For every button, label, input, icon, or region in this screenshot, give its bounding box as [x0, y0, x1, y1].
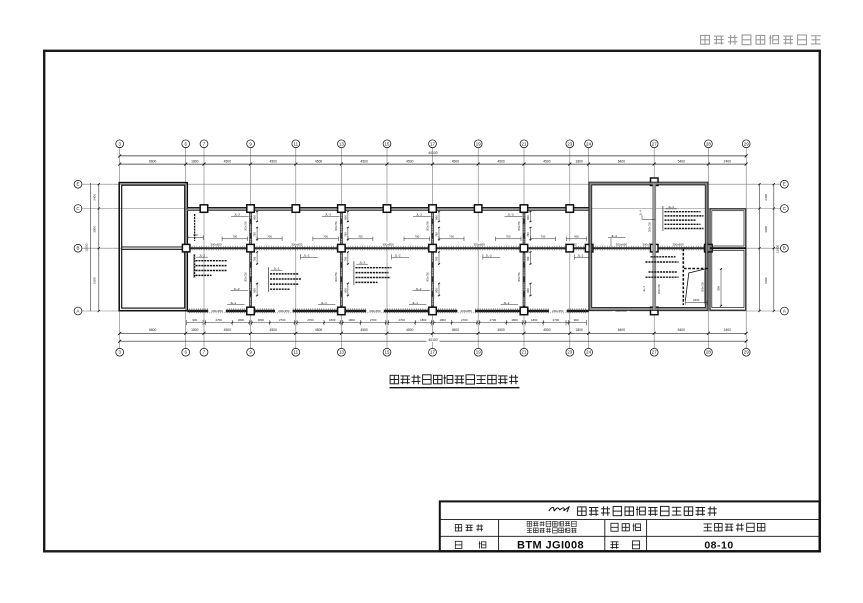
svg-text:6300: 6300 [93, 277, 97, 284]
svg-text:15: 15 [385, 350, 390, 355]
svg-text:6300: 6300 [764, 277, 768, 284]
svg-text:JL-1: JL-1 [274, 266, 280, 270]
svg-text:5400: 5400 [678, 159, 686, 163]
svg-text:1800: 1800 [348, 318, 355, 322]
svg-text:JL-2: JL-2 [486, 253, 492, 257]
svg-text:900: 900 [343, 215, 347, 220]
svg-text:300x650: 300x650 [291, 242, 303, 246]
svg-text:300x750: 300x750 [518, 272, 521, 282]
svg-text:2700: 2700 [215, 318, 222, 322]
svg-text:4500: 4500 [452, 328, 460, 332]
svg-text:JL-1: JL-1 [230, 301, 236, 305]
svg-text:1800: 1800 [420, 318, 427, 322]
svg-text:1800: 1800 [238, 318, 245, 322]
svg-text:JL-2: JL-2 [234, 213, 240, 217]
svg-text:2400: 2400 [764, 194, 768, 201]
svg-text:2700: 2700 [398, 318, 405, 322]
svg-text:4500: 4500 [361, 159, 369, 163]
svg-text:5400: 5400 [678, 328, 686, 332]
svg-text:4500: 4500 [406, 328, 414, 332]
svg-text:11: 11 [294, 350, 299, 355]
svg-text:4500: 4500 [543, 328, 551, 332]
svg-text:C: C [783, 206, 786, 211]
svg-text:1800: 1800 [511, 318, 518, 322]
svg-text:JL-4: JL-4 [611, 234, 617, 238]
svg-text:900: 900 [253, 288, 257, 293]
svg-text:19: 19 [476, 141, 481, 146]
svg-text:700: 700 [358, 234, 363, 238]
svg-text:E: E [783, 182, 786, 187]
svg-text:6400: 6400 [618, 328, 626, 332]
svg-text:200x350: 200x350 [369, 309, 381, 313]
svg-text:27: 27 [652, 141, 657, 146]
svg-text:17: 17 [430, 350, 435, 355]
svg-text:780: 780 [526, 256, 530, 261]
svg-text:200x350: 200x350 [278, 309, 290, 313]
svg-text:780: 780 [526, 232, 530, 237]
svg-text:900: 900 [193, 233, 198, 237]
svg-text:1800: 1800 [191, 328, 199, 332]
svg-text:780: 780 [434, 232, 438, 237]
svg-text:200x350: 200x350 [552, 309, 564, 313]
svg-text:08-10: 08-10 [704, 539, 733, 551]
svg-text:24: 24 [586, 141, 591, 146]
svg-text:900: 900 [343, 288, 347, 293]
svg-text:3900: 3900 [93, 226, 97, 233]
svg-text:JL-2: JL-2 [416, 213, 422, 217]
svg-text:700: 700 [449, 234, 454, 238]
svg-text:700: 700 [232, 234, 237, 238]
svg-text:4500: 4500 [497, 159, 505, 163]
svg-text:11: 11 [294, 141, 299, 146]
svg-text:6600: 6600 [149, 159, 157, 163]
svg-text:2700: 2700 [490, 318, 497, 322]
svg-text:JL-1: JL-1 [321, 301, 327, 305]
svg-text:4500: 4500 [543, 159, 551, 163]
svg-text:40100: 40100 [428, 338, 437, 342]
svg-text:13: 13 [339, 141, 344, 146]
svg-text:B: B [783, 246, 786, 251]
svg-text:JL-1: JL-1 [503, 301, 509, 305]
svg-text:4500: 4500 [315, 159, 323, 163]
svg-text:28: 28 [706, 141, 711, 146]
svg-text:900: 900 [434, 215, 438, 220]
svg-text:4500: 4500 [406, 159, 414, 163]
svg-text:900: 900 [526, 215, 530, 220]
svg-text:4500: 4500 [224, 159, 232, 163]
svg-text:2400: 2400 [724, 159, 732, 163]
svg-text:A: A [77, 309, 80, 314]
svg-text:300x650: 300x650 [382, 242, 394, 246]
svg-text:E: E [77, 182, 80, 187]
svg-text:JL-3: JL-3 [359, 260, 365, 264]
svg-text:JL-1: JL-1 [412, 301, 418, 305]
svg-text:BTM JGI008: BTM JGI008 [517, 540, 584, 552]
svg-text:2400: 2400 [724, 328, 732, 332]
svg-text:23: 23 [567, 350, 572, 355]
svg-text:4500: 4500 [270, 328, 278, 332]
svg-text:JL-4: JL-4 [668, 205, 674, 209]
svg-text:300x650: 300x650 [210, 242, 222, 246]
svg-text:2700: 2700 [461, 318, 468, 322]
svg-text:300x750: 300x750 [700, 281, 704, 292]
svg-text:900: 900 [253, 215, 257, 220]
svg-text:6600: 6600 [149, 328, 157, 332]
svg-text:780: 780 [343, 256, 347, 261]
svg-text:1800: 1800 [191, 159, 199, 163]
svg-text:JL-2: JL-2 [394, 253, 400, 257]
svg-text:780: 780 [253, 256, 257, 261]
svg-text:JL-3: JL-3 [325, 213, 331, 217]
svg-text:200x350: 200x350 [461, 309, 473, 313]
svg-text:900: 900 [716, 286, 720, 291]
svg-text:300x750: 300x750 [518, 221, 521, 231]
svg-text:4500: 4500 [224, 328, 232, 332]
svg-text:12600: 12600 [776, 245, 780, 253]
svg-text:21: 21 [522, 141, 527, 146]
svg-text:13: 13 [339, 350, 344, 355]
svg-text:780: 780 [343, 232, 347, 237]
svg-text:300x650: 300x650 [672, 242, 684, 246]
svg-text:700: 700 [323, 234, 328, 238]
svg-text:1800: 1800 [576, 328, 584, 332]
svg-text:1800: 1800 [439, 318, 446, 322]
svg-text:29: 29 [744, 141, 749, 146]
svg-text:23: 23 [567, 141, 572, 146]
svg-text:24: 24 [586, 350, 591, 355]
svg-text:4500: 4500 [497, 328, 505, 332]
svg-text:17: 17 [430, 141, 435, 146]
svg-text:2700: 2700 [553, 318, 560, 322]
svg-text:JL-4: JL-4 [642, 286, 646, 292]
svg-text:300x750: 300x750 [335, 221, 338, 231]
svg-text:300x650: 300x650 [616, 242, 628, 246]
svg-text:2700: 2700 [370, 318, 377, 322]
svg-text:A: A [783, 309, 786, 314]
svg-text:1800: 1800 [576, 159, 584, 163]
svg-text:28: 28 [706, 350, 711, 355]
svg-text:300x750: 300x750 [657, 283, 661, 294]
svg-text:300x750: 300x750 [335, 272, 338, 282]
svg-text:900: 900 [574, 318, 579, 322]
svg-text:700: 700 [506, 234, 511, 238]
svg-text:27: 27 [652, 350, 657, 355]
svg-text:900: 900 [574, 234, 579, 238]
svg-text:1800: 1800 [329, 318, 336, 322]
svg-text:300x750: 300x750 [648, 221, 652, 232]
svg-text:1800: 1800 [531, 318, 538, 322]
svg-text:300x750: 300x750 [244, 272, 247, 282]
svg-text:C: C [76, 206, 79, 211]
svg-text:6400: 6400 [618, 159, 626, 163]
svg-text:700: 700 [414, 234, 419, 238]
svg-text:40100: 40100 [428, 151, 437, 155]
svg-text:780: 780 [253, 232, 257, 237]
svg-text:780: 780 [434, 256, 438, 261]
svg-text:JL-2: JL-2 [199, 253, 205, 257]
svg-text:B: B [77, 246, 80, 251]
svg-text:700: 700 [267, 234, 272, 238]
svg-text:300x750: 300x750 [426, 221, 429, 231]
svg-text:15: 15 [385, 141, 390, 146]
svg-text:900: 900 [526, 288, 530, 293]
svg-text:3900: 3900 [764, 226, 768, 233]
svg-text:300x650: 300x650 [474, 242, 486, 246]
svg-text:JL-2: JL-2 [303, 253, 309, 257]
svg-text:JL-4: JL-4 [638, 210, 642, 216]
svg-text:700: 700 [541, 234, 546, 238]
svg-text:JL-3: JL-3 [507, 213, 513, 217]
svg-text:900: 900 [192, 318, 197, 322]
svg-text:4500: 4500 [452, 159, 460, 163]
svg-text:29: 29 [744, 350, 749, 355]
svg-text:JL-2: JL-2 [234, 287, 240, 291]
svg-text:4500: 4500 [361, 328, 369, 332]
svg-text:2400: 2400 [93, 194, 97, 201]
svg-text:200x350: 200x350 [211, 309, 223, 313]
svg-text:2400: 2400 [693, 298, 700, 302]
svg-text:300x750: 300x750 [244, 221, 247, 231]
svg-text:4500: 4500 [270, 159, 278, 163]
svg-text:19: 19 [476, 350, 481, 355]
svg-text:2700: 2700 [307, 318, 314, 322]
svg-text:900: 900 [434, 288, 438, 293]
svg-text:4500: 4500 [315, 328, 323, 332]
svg-text:21: 21 [522, 350, 527, 355]
svg-text:300x750: 300x750 [426, 272, 429, 282]
svg-text:JL-2: JL-2 [577, 253, 583, 257]
svg-text:2700: 2700 [279, 318, 286, 322]
svg-text:1800: 1800 [258, 318, 265, 322]
svg-text:12600: 12600 [84, 243, 88, 251]
svg-text:JL-2: JL-2 [415, 287, 421, 291]
